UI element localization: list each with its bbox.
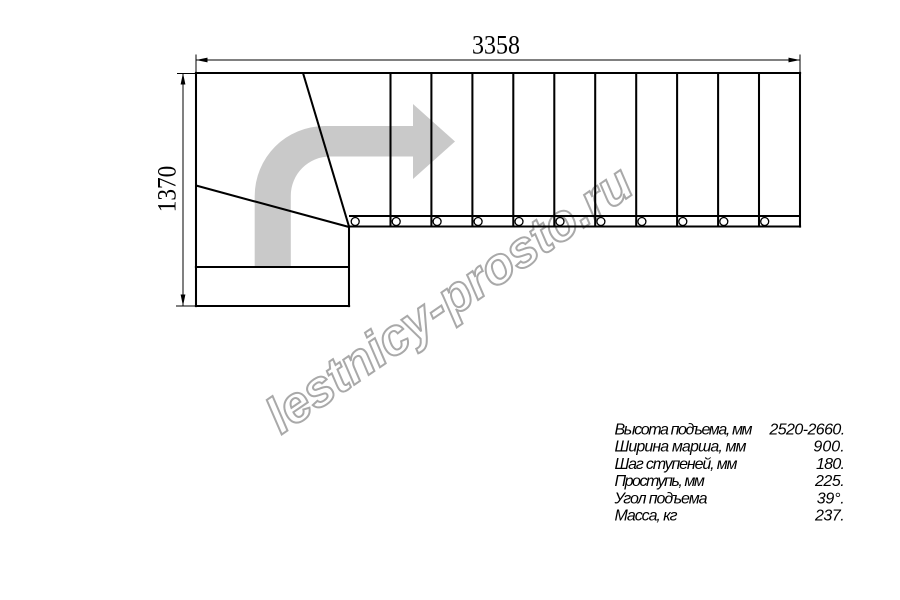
svg-text:900.: 900. bbox=[813, 439, 844, 456]
svg-text:225.: 225. bbox=[814, 473, 845, 490]
svg-text:3358: 3358 bbox=[472, 31, 520, 60]
svg-text:180.: 180. bbox=[816, 456, 845, 473]
svg-text:Проступь, мм: Проступь, мм bbox=[615, 473, 705, 490]
svg-text:1370: 1370 bbox=[153, 166, 182, 213]
svg-text:Угол подъема: Угол подъема bbox=[614, 490, 708, 507]
svg-text:237.: 237. bbox=[814, 508, 845, 525]
svg-text:Шаг ступеней, мм: Шаг ступеней, мм bbox=[615, 456, 738, 473]
svg-text:Масса, кг: Масса, кг bbox=[615, 508, 678, 525]
svg-text:2520-2660.: 2520-2660. bbox=[768, 421, 845, 438]
svg-text:39°.: 39°. bbox=[817, 490, 845, 507]
svg-text:Высота подъема, мм: Высота подъема, мм bbox=[615, 421, 753, 438]
svg-text:Ширина марша, мм: Ширина марша, мм bbox=[615, 439, 747, 456]
